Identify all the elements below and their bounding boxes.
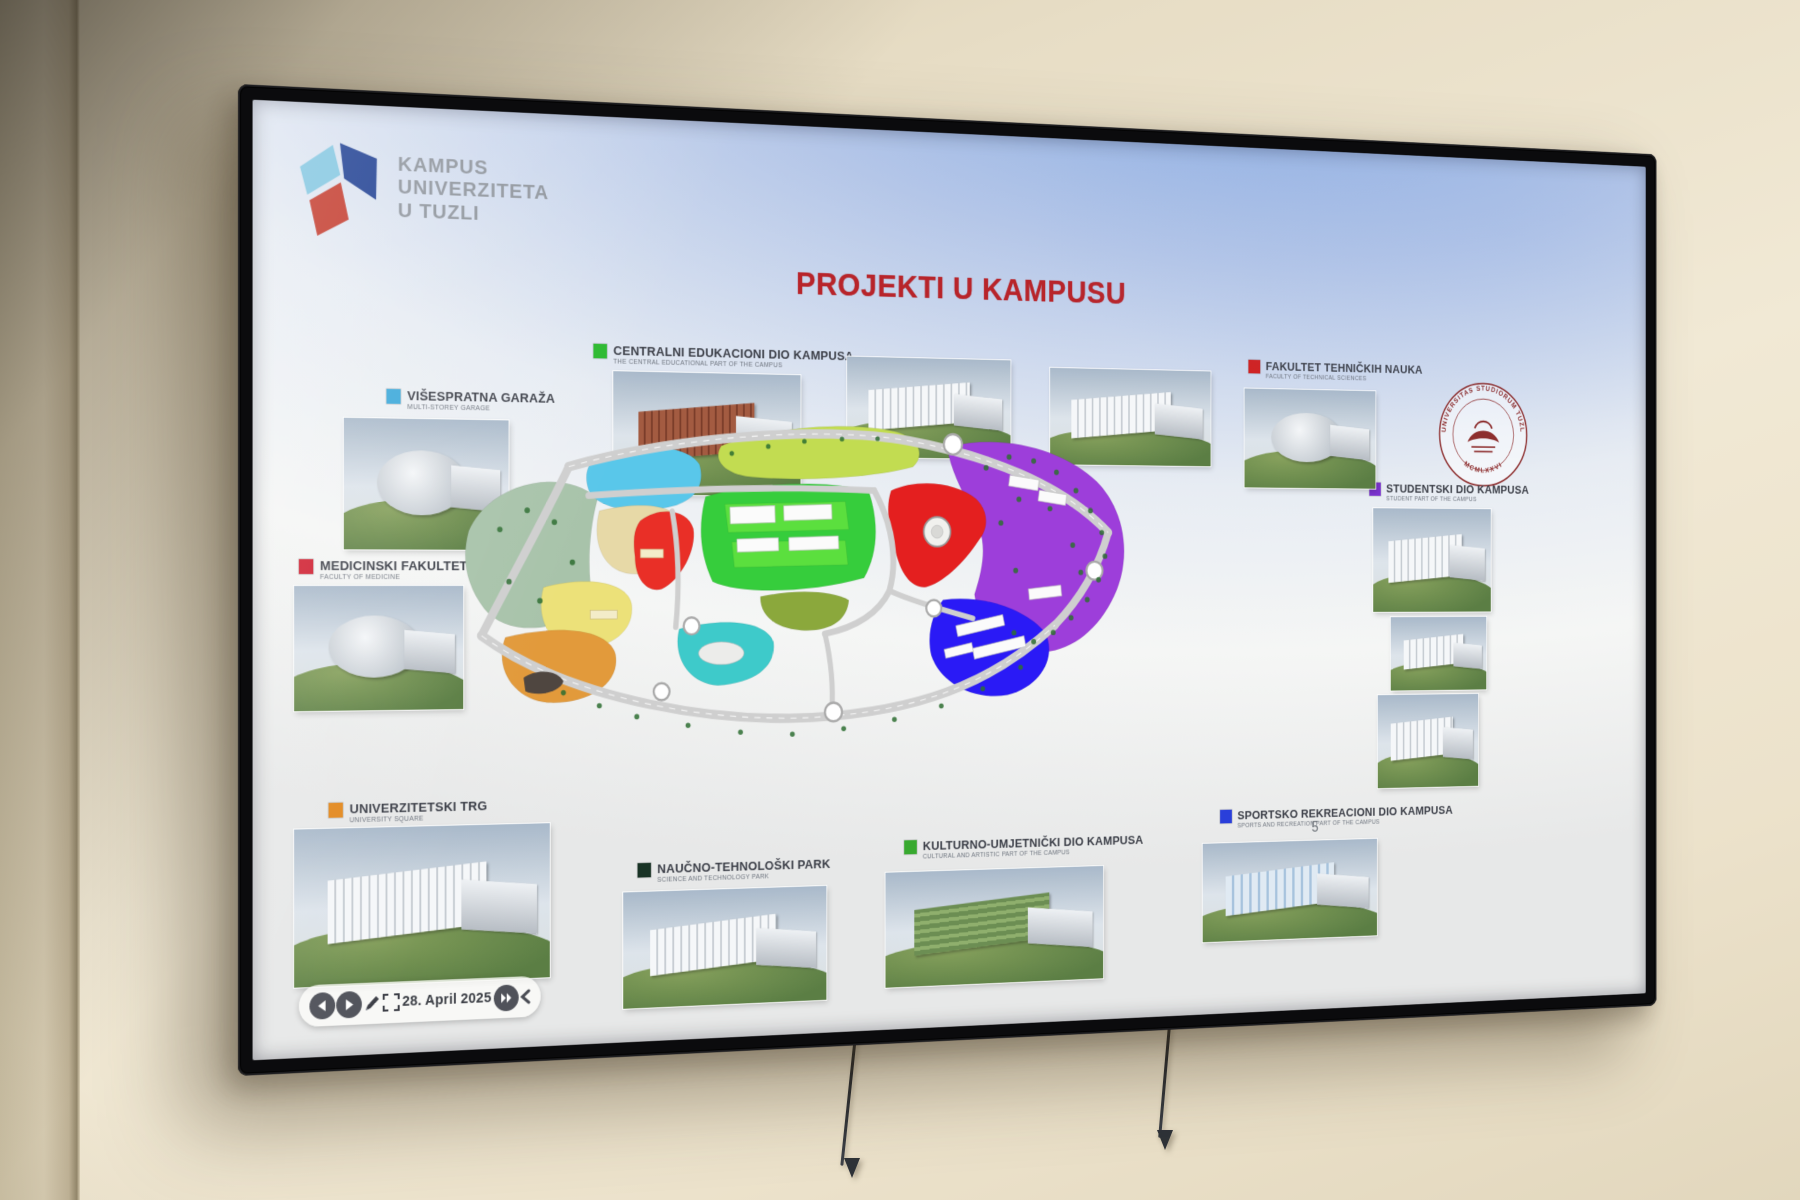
legend-square: UNIVERZITETSKI TRGUNIVERSITY SQUARE [329,798,488,824]
date-label: 28. April 2025 [402,990,491,1009]
legend-techpark: NAUČNO-TEHNOLOŠKI PARKSCIENCE AND TECHNO… [638,857,831,885]
legend-medical: MEDICINSKI FAKULTETFACULTY OF MEDICINE [299,558,468,581]
campus-logo: KAMPUS UNIVERZITETA U TUZLI [295,132,549,244]
campus-logo-text: KAMPUS UNIVERZITETA U TUZLI [398,153,549,227]
legend-swatch [593,344,607,359]
wall-mounted-tv: KAMPUS UNIVERZITETA U TUZLI PROJEKTI U K… [238,84,1656,1076]
map-zones [465,420,1124,704]
legend-swatch [638,863,651,878]
render-student-campus-2 [1391,617,1487,691]
legend-sublabel: STUDENT PART OF THE CAMPUS [1386,496,1529,503]
legend-cultural: KULTURNO-UMJETNIČKI DIO KAMPUSACULTURAL … [904,833,1143,861]
legend-swatch [1248,360,1260,374]
wall-corner [0,0,80,1200]
cable-weight-right [1157,1130,1173,1150]
legend-central: CENTRALNI EDUKACIONI DIO KAMPUSATHE CENT… [593,343,853,371]
play-arrow-icon [343,999,353,1010]
render-cultural-center [885,866,1103,988]
chevron-left-glyph [520,989,531,1005]
next-button[interactable] [494,984,519,1011]
render-student-campus-1 [1373,508,1491,612]
play-button[interactable] [336,990,362,1018]
pen-icon[interactable] [362,993,381,1014]
legend-swatch [904,840,917,854]
render-technical-faculty [1245,388,1376,488]
legend-swatch [386,389,400,404]
legend-swatch [1220,810,1232,824]
legend-swatch [299,559,313,574]
render-student-campus-3 [1378,694,1478,788]
fullscreen-brackets-glyph [382,993,399,1011]
render-sports-complex [1203,839,1377,943]
legend-ftn: FAKULTET TEHNIČKIH NAUKAFACULTY OF TECHN… [1248,359,1422,384]
legend-student: STUDENTSKI DIO KAMPUSASTUDENT PART OF TH… [1369,482,1529,504]
legend-sublabel: FACULTY OF MEDICINE [320,574,468,581]
legend-label: MEDICINSKI FAKULTET [320,558,468,573]
campus-logo-cube-icon [292,132,390,238]
legend-sports: SPORTSKO REKREACIONI DIO KAMPUSASPORTS A… [1220,803,1453,830]
cable-weight-left [844,1158,860,1178]
slide-title: PROJEKTI U KAMPUSU [253,247,1581,325]
render-university-square [294,823,550,988]
fast-forward-icon [501,992,513,1003]
university-seal: UNIVERSITAS STUDIORUM TUZLAENSIS MCMLXXV… [1437,379,1529,489]
collapse-chevron-icon[interactable] [520,989,531,1005]
render-science-tech-park [623,886,826,1009]
tv-screen: KAMPUS UNIVERZITETA U TUZLI PROJEKTI U K… [253,100,1646,1061]
fullscreen-icon[interactable] [382,993,399,1011]
prev-button[interactable] [309,991,335,1019]
presentation-slide: KAMPUS UNIVERZITETA U TUZLI PROJEKTI U K… [253,100,1646,1061]
prev-arrow-icon [317,1000,328,1011]
pen-glyph [362,993,381,1014]
player-toolbar: 28. April 2025 [299,976,541,1028]
legend-swatch [329,803,343,818]
legend-label: STUDENTSKI DIO KAMPUSA [1386,482,1529,497]
page-number: 5 [1312,820,1319,836]
campus-map [452,403,1218,791]
render-medical-faculty [294,586,463,711]
